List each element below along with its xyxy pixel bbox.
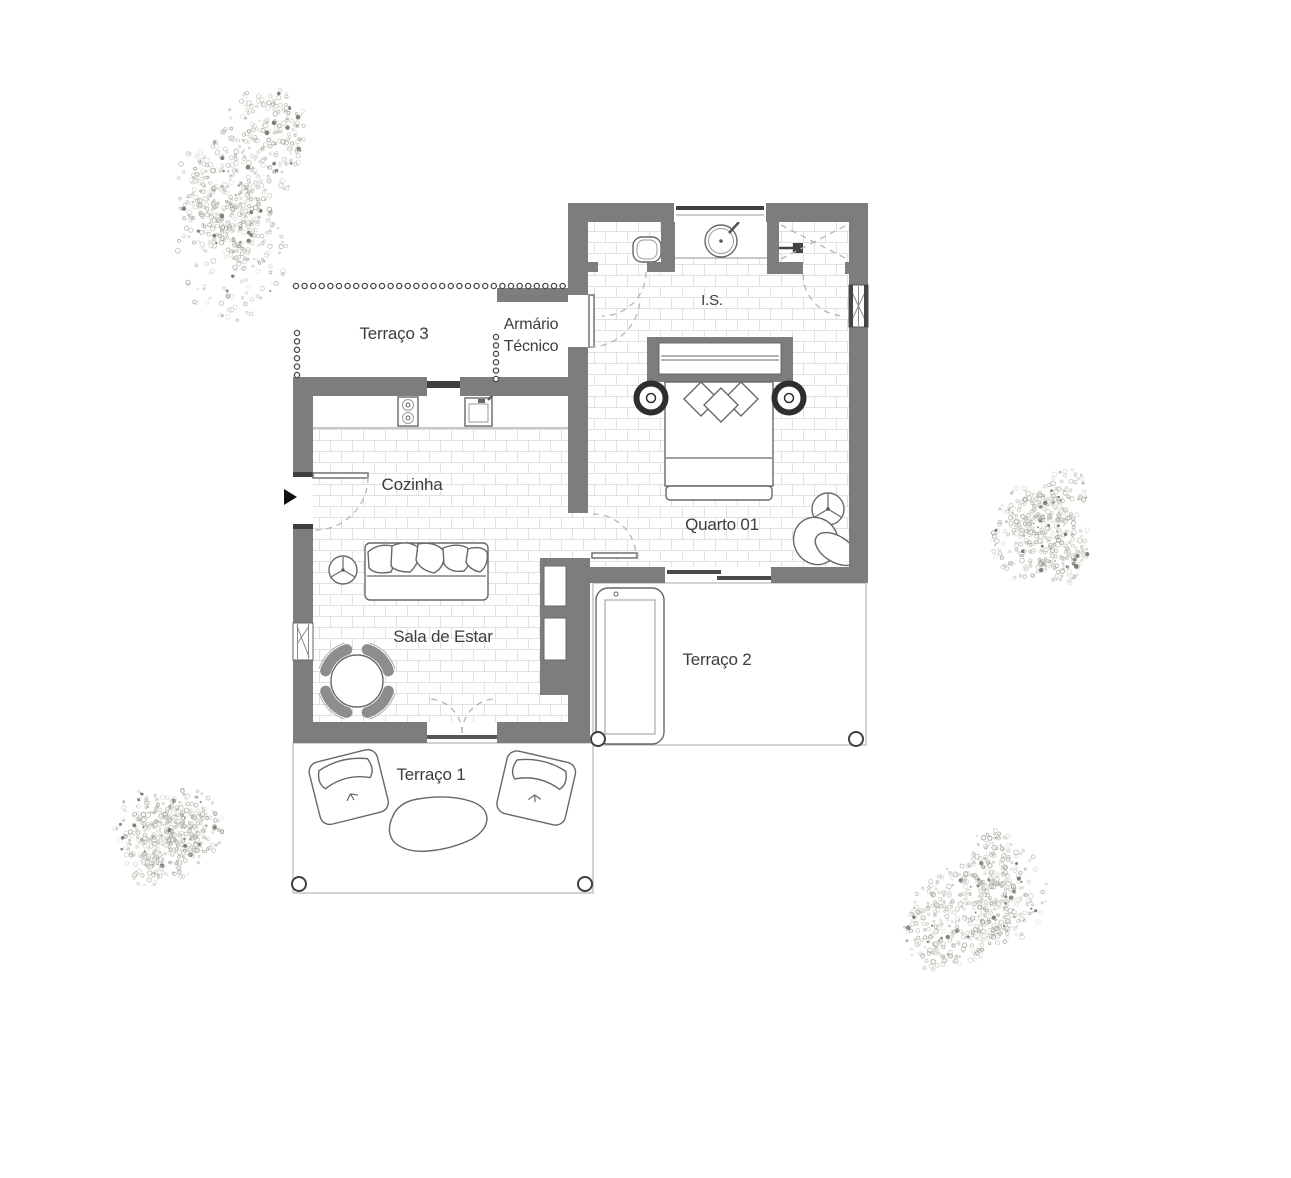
wall [568, 558, 590, 743]
cooktop [398, 397, 418, 426]
nightstand-right [775, 384, 804, 413]
wall [293, 396, 313, 472]
wall [293, 529, 313, 623]
floor-plan-svg: Terraço 3 Armário Técnico I.S. Cozinha Q… [0, 0, 1291, 1178]
label-terraco1: Terraço 1 [396, 765, 465, 784]
label-sala: Sala de Estar [393, 627, 493, 646]
wall [766, 203, 868, 222]
sofa [365, 543, 488, 600]
corner-post [578, 877, 592, 891]
label-cozinha: Cozinha [382, 475, 444, 494]
wall [497, 288, 568, 302]
terrace1-armchair-right [495, 749, 578, 827]
wall [588, 262, 598, 272]
window-east [849, 285, 868, 327]
floor-plan-canvas: Terraço 3 Armário Técnico I.S. Cozinha Q… [0, 0, 1291, 1178]
shelf-niche-unit [540, 558, 568, 695]
entry-arrow-icon [284, 489, 297, 505]
label-armario-line1: Armário [504, 316, 559, 333]
window-top [674, 203, 766, 222]
label-is: I.S. [701, 292, 723, 309]
nightstand-left [637, 384, 666, 413]
tree-mid-right-icon [991, 468, 1089, 585]
sofa-side-table [329, 556, 357, 584]
tree-bottom-left-icon [113, 788, 224, 885]
sliding-door-kitchen [427, 381, 460, 388]
wall [568, 222, 588, 295]
wall [568, 203, 674, 222]
wall [771, 567, 868, 583]
kitchen-counter [313, 396, 568, 428]
corner-post [849, 732, 863, 746]
terrace1-stone-table [389, 797, 487, 851]
wall [460, 377, 568, 396]
wall [647, 262, 675, 272]
wall [767, 262, 803, 274]
lintel-tick [293, 524, 313, 529]
lintel-tick [293, 472, 313, 477]
terrace2-lounger [596, 588, 664, 744]
dining-table [331, 655, 383, 707]
corner-post [292, 877, 306, 891]
tree-top-left-icon [175, 89, 305, 322]
corner-post [591, 732, 605, 746]
label-terraco3: Terraço 3 [359, 324, 428, 343]
wall [588, 567, 665, 583]
tree-bottom-right-icon [904, 829, 1048, 972]
label-terraco2: Terraço 2 [682, 650, 751, 669]
label-quarto: Quarto 01 [685, 515, 759, 534]
wall [293, 722, 427, 743]
toilet [633, 237, 661, 262]
window-west-living [293, 623, 313, 660]
wall [849, 222, 868, 285]
wall [293, 660, 313, 722]
hall-floor [568, 513, 588, 558]
wall [568, 347, 588, 513]
sliding-door-terrace2 [667, 570, 771, 580]
label-armario-line2: Técnico [504, 338, 559, 355]
wall [849, 327, 868, 583]
terrace1-armchair-left [307, 748, 390, 827]
wall [845, 262, 849, 274]
bed-headboard [647, 337, 793, 382]
wall [293, 377, 427, 396]
